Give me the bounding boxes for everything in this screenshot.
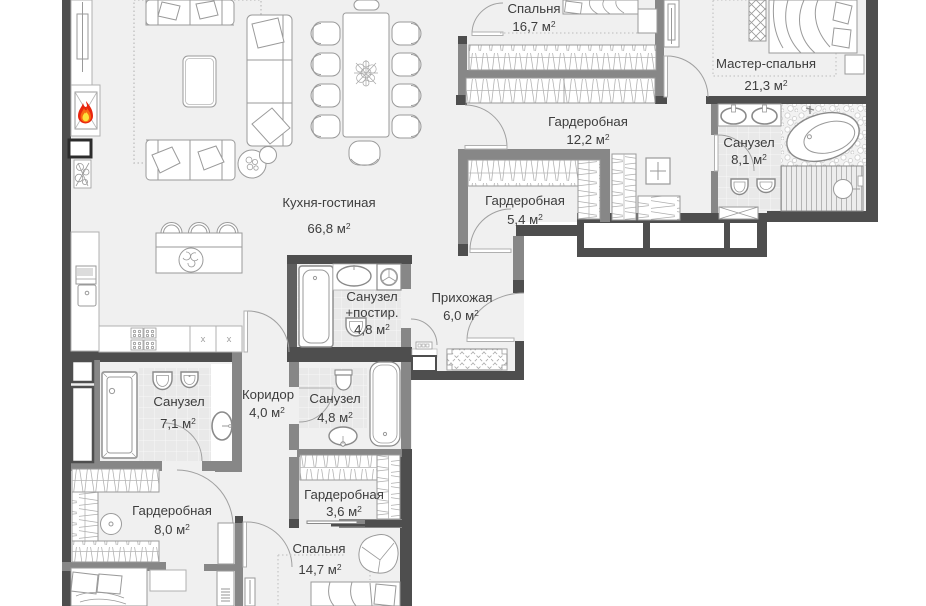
svg-text:Спальня: Спальня (293, 541, 346, 556)
svg-text:+постир.: +постир. (345, 305, 398, 320)
svg-text:16,7 м2: 16,7 м2 (512, 19, 555, 34)
svg-text:66,8 м2: 66,8 м2 (307, 221, 350, 236)
svg-text:Кухня-гостиная: Кухня-гостиная (282, 195, 375, 210)
svg-text:4,8 м2: 4,8 м2 (317, 410, 353, 425)
svg-text:Санузел: Санузел (309, 391, 360, 406)
svg-text:Гардеробная: Гардеробная (548, 114, 628, 129)
svg-text:4,0 м2: 4,0 м2 (249, 405, 285, 420)
svg-text:x: x (227, 334, 232, 345)
svg-text:3,6 м2: 3,6 м2 (326, 504, 362, 519)
svg-text:Прихожая: Прихожая (431, 290, 492, 305)
svg-text:21,3 м2: 21,3 м2 (744, 78, 787, 93)
svg-text:Санузел: Санузел (346, 289, 397, 304)
svg-text:5,4 м2: 5,4 м2 (507, 212, 543, 227)
svg-text:Санузел: Санузел (723, 135, 774, 150)
svg-text:x: x (201, 334, 206, 345)
svg-text:Мастер-спальня: Мастер-спальня (716, 56, 816, 71)
svg-text:14,7 м2: 14,7 м2 (298, 562, 341, 577)
svg-text:Гардеробная: Гардеробная (485, 193, 565, 208)
svg-text:12,2 м2: 12,2 м2 (566, 132, 609, 147)
svg-text:Спальня: Спальня (508, 1, 561, 16)
svg-text:8,0 м2: 8,0 м2 (154, 522, 190, 537)
svg-text:Гардеробная: Гардеробная (132, 503, 212, 518)
svg-text:Санузел: Санузел (153, 394, 204, 409)
svg-text:Коридор: Коридор (242, 387, 294, 402)
svg-text:Гардеробная: Гардеробная (304, 487, 384, 502)
svg-text:4,8 м2: 4,8 м2 (354, 322, 390, 337)
svg-text:8,1 м2: 8,1 м2 (731, 152, 767, 167)
svg-text:6,0 м2: 6,0 м2 (443, 308, 479, 323)
svg-text:7,1 м2: 7,1 м2 (160, 416, 196, 431)
